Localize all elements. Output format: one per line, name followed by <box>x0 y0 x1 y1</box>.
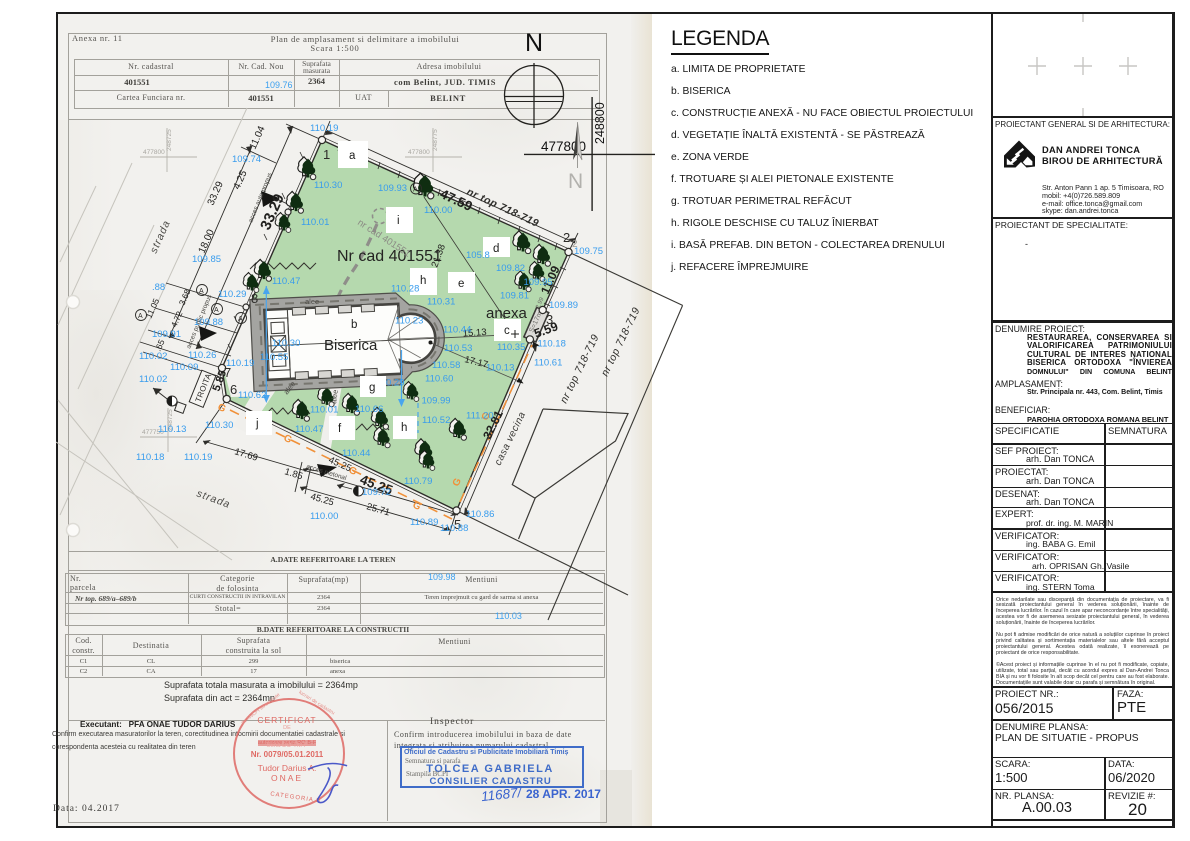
svg-text:A: A <box>214 307 219 314</box>
svg-text:1.85: 1.85 <box>283 466 304 482</box>
svg-text:109.91: 109.91 <box>152 329 181 340</box>
svg-text:110.30: 110.30 <box>205 420 233 431</box>
svg-text:e: e <box>458 278 464 290</box>
svg-text:109.75: 109.75 <box>574 246 603 257</box>
svg-text:110.09: 110.09 <box>170 362 198 373</box>
svg-text:248775: 248775 <box>432 129 439 151</box>
svg-text:A: A <box>238 316 243 323</box>
svg-text:110.52: 110.52 <box>422 415 450 426</box>
svg-text:110.02: 110.02 <box>139 351 167 362</box>
svg-text:18.00: 18.00 <box>197 227 217 255</box>
svg-text:110.18: 110.18 <box>136 452 164 463</box>
svg-text:A: A <box>138 313 143 320</box>
svg-text:110.58: 110.58 <box>432 360 460 371</box>
svg-text:109.82: 109.82 <box>496 263 525 274</box>
svg-text:110.19: 110.19 <box>310 123 338 134</box>
svg-text:110.28: 110.28 <box>391 284 419 295</box>
svg-text:110.29: 110.29 <box>218 289 246 300</box>
svg-text:h: h <box>401 422 407 434</box>
svg-text:110.01: 110.01 <box>310 405 338 416</box>
svg-text:110.88: 110.88 <box>440 523 468 534</box>
svg-text:8: 8 <box>251 291 258 306</box>
svg-text:110.44: 110.44 <box>342 448 370 459</box>
svg-text:c: c <box>504 325 510 337</box>
svg-text:110.00: 110.00 <box>424 205 452 216</box>
svg-text:h: h <box>420 275 426 287</box>
svg-text:110.30: 110.30 <box>272 338 300 349</box>
svg-text:110.18: 110.18 <box>538 339 566 350</box>
svg-text:110.86: 110.86 <box>466 509 494 520</box>
svg-text:4.25: 4.25 <box>232 169 250 192</box>
svg-text:110.66: 110.66 <box>355 404 383 415</box>
svg-text:17.69: 17.69 <box>233 446 259 463</box>
svg-text:110.55: 110.55 <box>260 352 288 363</box>
svg-text:110.53: 110.53 <box>444 343 472 354</box>
svg-text:i: i <box>397 215 400 227</box>
svg-text:109.72: 109.72 <box>362 487 391 498</box>
svg-text:G: G <box>282 433 294 446</box>
svg-text:110.02: 110.02 <box>139 374 167 385</box>
svg-text:248725: 248725 <box>166 129 173 151</box>
svg-text:110.62: 110.62 <box>238 390 266 401</box>
svg-text:A: A <box>199 288 204 295</box>
svg-text:110.61: 110.61 <box>534 358 562 369</box>
svg-text:477800: 477800 <box>408 149 430 156</box>
svg-text:25.71: 25.71 <box>365 501 391 518</box>
svg-text:477800: 477800 <box>143 149 165 156</box>
svg-text:110.89: 110.89 <box>410 517 438 528</box>
svg-text:.88: .88 <box>152 282 165 293</box>
svg-text:110.01: 110.01 <box>301 217 329 228</box>
svg-text:110.19: 110.19 <box>184 452 212 463</box>
svg-text:anexa: anexa <box>486 305 528 322</box>
svg-text:110.47: 110.47 <box>295 424 323 435</box>
svg-text:110.23: 110.23 <box>395 316 423 327</box>
svg-text:d: d <box>493 243 499 255</box>
svg-text:110.31: 110.31 <box>427 297 455 308</box>
svg-text:strada: strada <box>195 488 232 511</box>
svg-text:109.95: 109.95 <box>524 277 553 288</box>
svg-text:a: a <box>349 150 356 162</box>
svg-text:4.72: 4.72 <box>169 309 185 328</box>
svg-text:109.99: 109.99 <box>422 396 451 407</box>
svg-text:1: 1 <box>323 147 330 162</box>
svg-text:110.47: 110.47 <box>272 276 300 287</box>
svg-text:0.29: 0.29 <box>386 378 405 389</box>
svg-text:N: N <box>568 170 583 193</box>
svg-text:Biserica: Biserica <box>324 337 378 354</box>
svg-text:109.74: 109.74 <box>232 154 261 165</box>
svg-text:109.85: 109.85 <box>192 254 221 265</box>
svg-text:111.20: 111.20 <box>466 411 494 422</box>
svg-text:6: 6 <box>230 382 237 397</box>
svg-text:G: G <box>216 402 228 415</box>
svg-text:Nr cad 401551: Nr cad 401551 <box>337 248 442 265</box>
svg-text:33.29: 33.29 <box>206 179 226 207</box>
svg-text:110.19: 110.19 <box>226 358 254 369</box>
svg-text:j: j <box>255 418 259 430</box>
svg-text:110.26: 110.26 <box>188 350 216 361</box>
svg-text:110.00: 110.00 <box>310 511 338 522</box>
svg-text:110.35: 110.35 <box>497 342 525 353</box>
svg-text:109.89: 109.89 <box>549 300 578 311</box>
svg-text:109.81: 109.81 <box>500 291 529 302</box>
svg-text:g: g <box>369 382 375 394</box>
svg-text:strada: strada <box>148 218 173 255</box>
svg-text:105.8: 105.8 <box>466 250 490 261</box>
svg-text:N: N <box>525 29 543 57</box>
svg-text:alee: alee <box>305 297 319 306</box>
svg-text:109.88: 109.88 <box>194 317 223 328</box>
svg-text:110.44: 110.44 <box>443 325 471 336</box>
svg-text:A: A <box>413 187 418 194</box>
svg-text:110.13: 110.13 <box>486 363 514 374</box>
svg-text:110.60: 110.60 <box>425 374 453 385</box>
svg-text:109.93: 109.93 <box>378 183 407 194</box>
svg-text:b: b <box>351 319 357 331</box>
svg-text:110.30: 110.30 <box>314 180 342 191</box>
svg-text:248800: 248800 <box>593 102 607 144</box>
svg-text:11.04: 11.04 <box>248 124 268 151</box>
svg-text:2: 2 <box>563 230 570 245</box>
svg-text:11.05: 11.05 <box>144 297 162 320</box>
svg-text:110.13: 110.13 <box>158 424 186 435</box>
svg-text:110.79: 110.79 <box>404 476 432 487</box>
svg-text:45.25: 45.25 <box>309 491 335 508</box>
svg-text:nr top 718-719: nr top 718-719 <box>599 305 643 378</box>
